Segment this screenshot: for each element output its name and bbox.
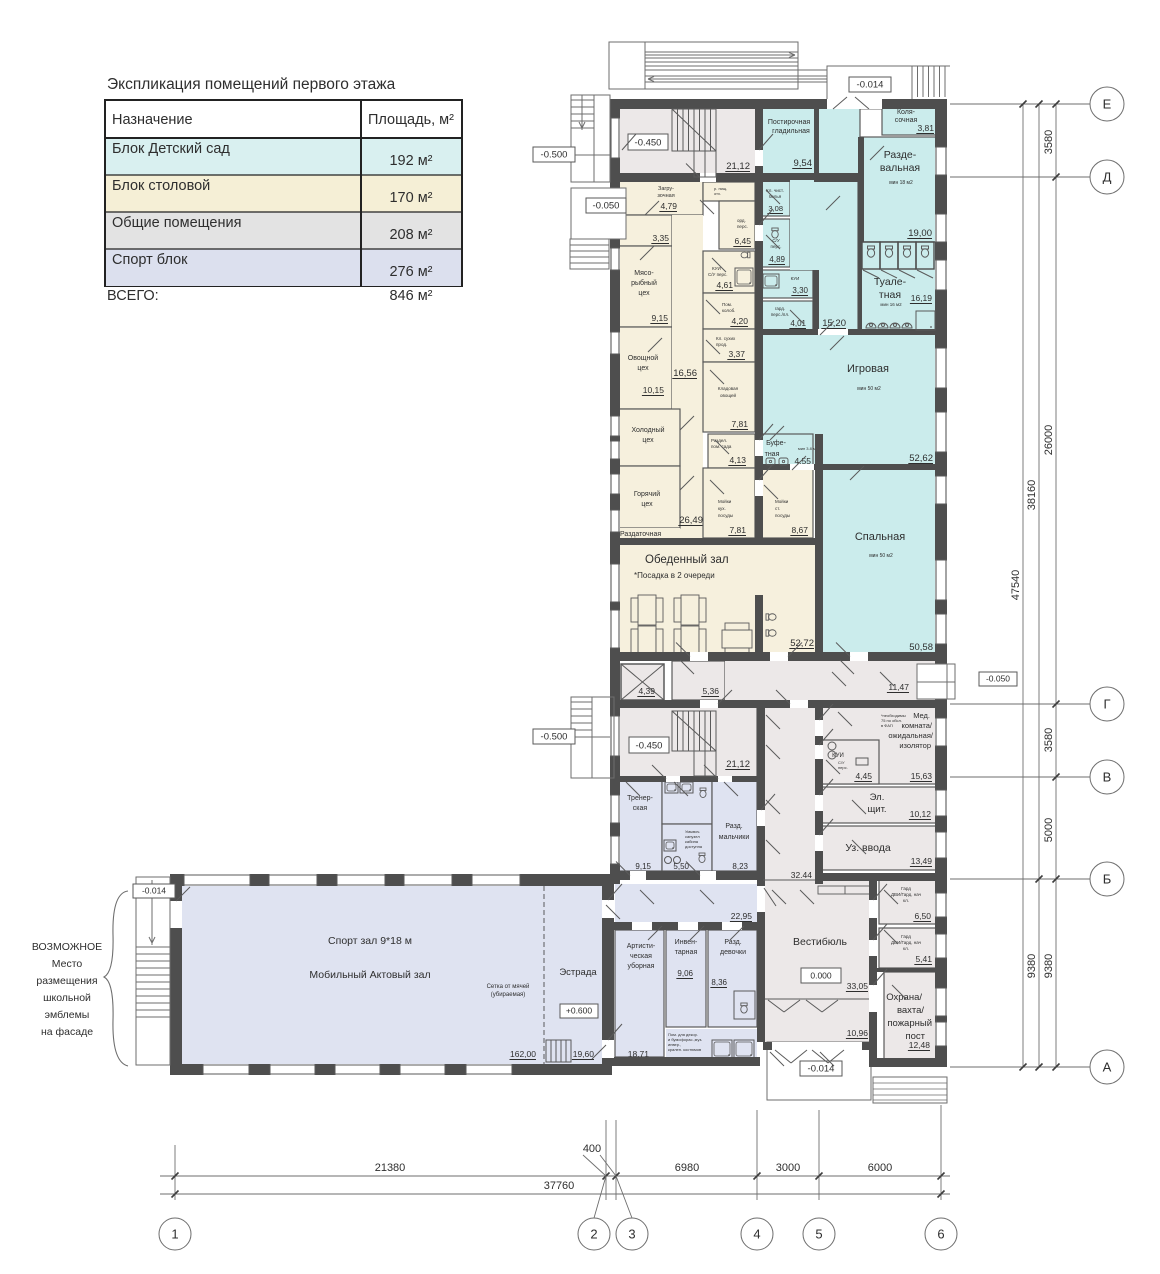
svg-text:3,81: 3,81: [917, 123, 934, 133]
svg-text:208 м²: 208 м²: [389, 227, 432, 243]
svg-text:400: 400: [583, 1143, 601, 1155]
svg-text:5: 5: [815, 1227, 822, 1242]
svg-text:Эл.: Эл.: [870, 792, 885, 803]
svg-text:170 м²: 170 м²: [389, 190, 432, 206]
svg-text:Пом.: Пом.: [722, 302, 732, 307]
svg-text:0.000: 0.000: [810, 971, 832, 981]
svg-text:Игровая: Игровая: [847, 363, 889, 375]
svg-text:Постирочная: Постирочная: [768, 119, 811, 126]
svg-text:-0.014: -0.014: [857, 80, 884, 91]
svg-text:Коля-: Коля-: [897, 109, 916, 116]
svg-text:52,62: 52,62: [909, 453, 933, 464]
svg-text:вахта/: вахта/: [897, 1005, 924, 1016]
svg-text:уборная: уборная: [628, 962, 655, 970]
svg-text:гард.: гард.: [775, 306, 785, 311]
svg-text:5,41: 5,41: [915, 954, 932, 964]
svg-text:7,81: 7,81: [729, 525, 746, 535]
svg-text:Назначение: Назначение: [112, 112, 193, 128]
svg-text:8,23: 8,23: [732, 862, 748, 871]
svg-text:колоб.: колоб.: [722, 308, 735, 313]
svg-text:Площадь, м²: Площадь, м²: [368, 112, 454, 128]
svg-text:6000: 6000: [868, 1162, 892, 1174]
svg-text:37760: 37760: [544, 1180, 575, 1192]
svg-text:мин 50 м2: мин 50 м2: [869, 553, 893, 559]
svg-text:3,30: 3,30: [792, 286, 808, 295]
svg-text:192 м²: 192 м²: [389, 153, 432, 169]
svg-text:21380: 21380: [375, 1162, 406, 1174]
svg-text:цех: цех: [641, 501, 653, 508]
svg-text:вальная: вальная: [880, 162, 920, 174]
svg-text:перс.: перс.: [737, 224, 748, 229]
svg-text:8,36: 8,36: [711, 978, 727, 987]
svg-text:тная: тная: [765, 451, 780, 458]
svg-text:10,15: 10,15: [643, 385, 665, 395]
svg-text:Мед.: Мед.: [913, 711, 930, 720]
svg-text:мальчики: мальчики: [719, 834, 750, 841]
svg-text:Мойки: Мойки: [775, 498, 789, 504]
svg-text:-0.500: -0.500: [541, 732, 568, 743]
svg-text:цех: цех: [638, 290, 650, 297]
svg-text:8,67: 8,67: [791, 525, 808, 535]
svg-text:3580: 3580: [1043, 130, 1055, 154]
svg-text:цех: цех: [642, 437, 654, 444]
svg-text:6: 6: [937, 1227, 944, 1242]
svg-text:перс./пл.: перс./пл.: [771, 312, 790, 317]
svg-text:школьной: школьной: [43, 992, 91, 1004]
svg-text:цех: цех: [637, 365, 649, 372]
svg-text:Мясо-: Мясо-: [634, 270, 654, 277]
svg-text:Овощной: Овощной: [628, 354, 658, 362]
svg-text:ВСЕГО:: ВСЕГО:: [107, 288, 159, 304]
svg-text:зочная: зочная: [657, 193, 674, 199]
svg-text:Тренер-: Тренер-: [627, 795, 653, 802]
svg-text:Вестибюль: Вестибюль: [793, 936, 848, 948]
svg-text:Сетка от мячей: Сетка от мячей: [487, 983, 530, 990]
svg-text:2: 2: [590, 1227, 597, 1242]
svg-text:4,61: 4,61: [716, 280, 733, 290]
svg-text:кл.: кл.: [903, 946, 909, 951]
svg-text:15,63: 15,63: [911, 771, 933, 781]
svg-text:эмблемы: эмблемы: [45, 1009, 90, 1021]
svg-text:А: А: [1103, 1060, 1112, 1075]
svg-text:на фасаде: на фасаде: [41, 1026, 93, 1038]
svg-text:перс.: перс.: [838, 765, 848, 770]
svg-text:ожидальная/: ожидальная/: [888, 731, 933, 740]
svg-text:КУИ: КУИ: [712, 266, 721, 271]
svg-text:размещения: размещения: [36, 975, 97, 987]
svg-text:комната/: комната/: [902, 721, 933, 730]
svg-text:7,81: 7,81: [731, 419, 748, 429]
svg-text:мин 16 м2: мин 16 м2: [880, 302, 902, 307]
svg-text:9380: 9380: [1026, 954, 1038, 978]
svg-text:ВОЗМОЖНОЕ: ВОЗМОЖНОЕ: [32, 941, 102, 953]
svg-text:16,56: 16,56: [673, 368, 697, 379]
svg-text:тная: тная: [879, 289, 901, 301]
svg-text:15,20: 15,20: [822, 318, 846, 329]
svg-text:52,72: 52,72: [790, 638, 814, 649]
svg-text:Обеденный зал: Обеденный зал: [645, 554, 729, 566]
svg-text:Кладовая: Кладовая: [718, 386, 739, 391]
svg-text:*Посадка в 2 очереди: *Посадка в 2 очереди: [634, 571, 715, 580]
svg-text:Разде-: Разде-: [884, 149, 917, 161]
svg-text:5,36: 5,36: [702, 686, 719, 696]
svg-text:ская: ская: [633, 805, 648, 812]
svg-text:Загру-: Загру-: [658, 186, 674, 192]
svg-text:1: 1: [171, 1227, 178, 1242]
svg-text:пожарный: пожарный: [887, 1018, 932, 1029]
svg-text:Общие помещения: Общие помещения: [112, 215, 241, 231]
svg-text:16,19: 16,19: [911, 293, 933, 303]
svg-text:4,13: 4,13: [729, 455, 746, 465]
svg-text:-0.500: -0.500: [541, 150, 568, 161]
svg-text:Спорт блок: Спорт блок: [112, 252, 188, 268]
svg-text:щит.: щит.: [867, 804, 886, 815]
svg-text:ческая: ческая: [630, 953, 652, 960]
svg-text:Д: Д: [1103, 170, 1112, 185]
svg-text:ДВИ/Гард. нач: ДВИ/Гард. нач: [891, 892, 922, 897]
svg-text:-0.450: -0.450: [635, 138, 662, 149]
svg-text:Буфе-: Буфе-: [766, 440, 787, 447]
svg-text:мин 50 м2: мин 50 м2: [857, 386, 881, 392]
svg-text:прод.: прод.: [716, 342, 727, 347]
svg-text:4,79: 4,79: [660, 201, 677, 211]
svg-text:Холодный: Холодный: [631, 426, 664, 434]
svg-text:Г: Г: [1103, 697, 1110, 712]
svg-text:-0.450: -0.450: [636, 741, 663, 752]
svg-text:ст.: ст.: [775, 506, 780, 511]
svg-text:ДВИ/Гард. нач: ДВИ/Гард. нач: [891, 940, 922, 945]
svg-text:Гард: Гард: [901, 934, 911, 939]
svg-text:21,12: 21,12: [726, 161, 750, 172]
svg-text:В: В: [1103, 770, 1112, 785]
svg-text:3,35: 3,35: [652, 233, 669, 243]
svg-text:мин 18 м2: мин 18 м2: [889, 180, 913, 186]
svg-text:9380: 9380: [1043, 954, 1055, 978]
svg-text:Разд.: Разд.: [724, 939, 741, 946]
svg-text:в ФАП: в ФАП: [881, 723, 893, 728]
svg-text:38160: 38160: [1026, 480, 1038, 511]
svg-text:-0.050: -0.050: [593, 201, 620, 212]
svg-text:Разд.: Разд.: [725, 823, 742, 830]
svg-text:12,48: 12,48: [909, 1040, 931, 1050]
svg-text:рыбный: рыбный: [631, 279, 657, 287]
svg-text:3,37: 3,37: [728, 349, 745, 359]
svg-text:-0.014: -0.014: [142, 886, 166, 896]
svg-text:-0.050: -0.050: [986, 674, 1010, 684]
svg-text:Спорт зал 9*18 м: Спорт зал 9*18 м: [328, 935, 412, 947]
svg-text:Гард: Гард: [901, 886, 911, 891]
svg-text:3: 3: [628, 1227, 635, 1242]
svg-text:9,06: 9,06: [677, 969, 693, 978]
svg-text:47540: 47540: [1010, 570, 1022, 601]
svg-text:3580: 3580: [1043, 728, 1055, 752]
svg-text:846 м²: 846 м²: [389, 288, 432, 304]
svg-text:девочки: девочки: [720, 949, 746, 956]
svg-text:Блок Детский сад: Блок Детский сад: [112, 141, 230, 157]
svg-text:Раздел.: Раздел.: [711, 438, 727, 443]
svg-text:4,45: 4,45: [855, 771, 872, 781]
svg-text:Место: Место: [52, 958, 83, 970]
svg-text:КУИ: КУИ: [791, 276, 800, 281]
svg-text:доступна: доступна: [685, 844, 703, 849]
svg-text:посуды: посуды: [775, 513, 790, 518]
svg-text:4: 4: [753, 1227, 760, 1242]
svg-text:276 м²: 276 м²: [389, 264, 432, 280]
svg-text:Артисти-: Артисти-: [627, 943, 656, 950]
svg-text:С/У перс.: С/У перс.: [708, 272, 728, 277]
svg-text:овощей: овощей: [720, 392, 737, 398]
svg-text:Блок столовой: Блок столовой: [112, 178, 210, 194]
svg-text:10,12: 10,12: [910, 809, 932, 819]
svg-text:13,49: 13,49: [911, 856, 933, 866]
svg-text:21,12: 21,12: [726, 759, 750, 770]
svg-text:сочная: сочная: [895, 117, 918, 124]
svg-text:9,15: 9,15: [651, 313, 668, 323]
svg-text:отх.: отх.: [714, 191, 721, 196]
svg-text:26000: 26000: [1043, 425, 1055, 456]
svg-text:гладильная: гладильная: [772, 128, 810, 135]
svg-text:Кл. сухих: Кл. сухих: [716, 336, 736, 341]
svg-text:Горячий: Горячий: [634, 490, 660, 498]
svg-text:Экспликация помещений первого: Экспликация помещений первого этажа: [107, 76, 396, 93]
svg-text:тарная: тарная: [675, 949, 698, 956]
svg-text:крален. костюмов: крален. костюмов: [668, 1047, 701, 1052]
svg-text:33,05: 33,05: [847, 981, 869, 991]
svg-text:изолятор: изолятор: [899, 741, 931, 750]
svg-text:Инвен-: Инвен-: [675, 939, 698, 946]
svg-text:3000: 3000: [776, 1162, 800, 1174]
svg-text:Мойки: Мойки: [718, 498, 732, 504]
svg-text:9,15: 9,15: [635, 862, 651, 871]
svg-text:26,49: 26,49: [679, 515, 703, 526]
svg-text:4,39: 4,39: [638, 686, 655, 696]
svg-text:19,00: 19,00: [908, 228, 932, 239]
svg-text:50,58: 50,58: [909, 642, 933, 653]
svg-text:кух.: кух.: [718, 506, 726, 511]
svg-text:Спальная: Спальная: [855, 531, 905, 543]
svg-text:орд.: орд.: [737, 218, 746, 223]
svg-text:Мобильный Актовый зал: Мобильный Актовый зал: [309, 969, 430, 981]
svg-text:6980: 6980: [675, 1162, 699, 1174]
svg-text:(убираемая): (убираемая): [491, 992, 526, 998]
svg-text:-0.014: -0.014: [808, 1064, 835, 1075]
svg-text:22,95: 22,95: [731, 911, 753, 921]
svg-text:162,00: 162,00: [510, 1049, 536, 1059]
svg-text:6,45: 6,45: [734, 236, 751, 246]
svg-text:Раздаточная: Раздаточная: [620, 531, 661, 538]
svg-text:посуды: посуды: [718, 513, 733, 518]
svg-text:Е: Е: [1103, 97, 1112, 112]
svg-text:4,20: 4,20: [731, 316, 748, 326]
svg-text:4,89: 4,89: [769, 255, 785, 264]
svg-text:Эстрада: Эстрада: [559, 967, 597, 978]
svg-text:19,60: 19,60: [573, 1049, 595, 1059]
svg-text:9,54: 9,54: [794, 158, 813, 169]
svg-text:Б: Б: [1103, 872, 1112, 887]
svg-text:+0.600: +0.600: [566, 1006, 593, 1016]
svg-text:Уз. ввода: Уз. ввода: [845, 842, 891, 854]
svg-text:5,50: 5,50: [673, 862, 689, 871]
svg-text:кл.: кл.: [903, 898, 909, 903]
svg-text:5000: 5000: [1043, 818, 1055, 842]
svg-text:6,50: 6,50: [914, 911, 931, 921]
svg-text:10,96: 10,96: [847, 1028, 869, 1038]
